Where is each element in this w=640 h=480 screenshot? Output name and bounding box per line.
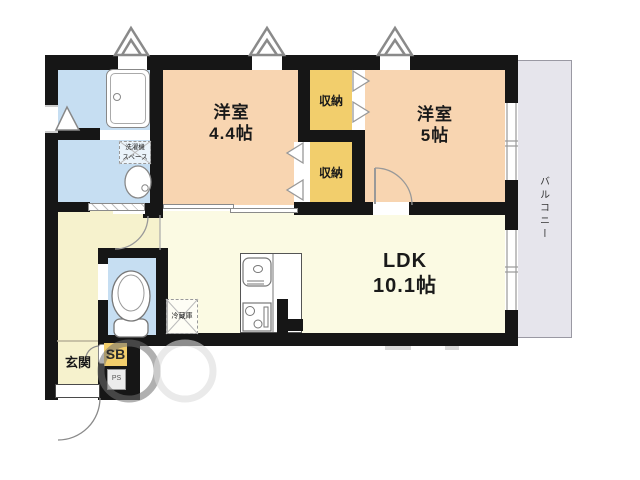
kitchen-partition-wall [277, 299, 288, 333]
sb-label: SB [104, 346, 127, 364]
room1-name: 洋室 [163, 102, 300, 123]
balcony-label: バルコニー [536, 158, 549, 258]
wall-closet-mid [298, 130, 365, 142]
toilet-door-gap [98, 264, 108, 300]
entrance-door-arc [58, 398, 100, 440]
refrigerator-label: 冷蔵庫 [166, 313, 198, 322]
vent-gap-3 [380, 55, 410, 70]
ldk-size: 10.1帖 [305, 274, 505, 299]
wall-bath-room1 [150, 55, 163, 213]
room1-sliding-door-panel-b [230, 208, 298, 213]
bath-window [45, 105, 58, 133]
washroom-sliding-door [88, 203, 145, 211]
floorplan: 洋室 4.4帖 洋室 5帖 LDK 10.1帖 収納 収納 バルコニー 玄関 S… [0, 0, 640, 480]
vent-chevron-1-inner [122, 40, 141, 55]
room2-label: 洋室 5帖 [365, 104, 505, 147]
room1-size: 4.4帖 [163, 123, 300, 144]
washer-space-label: 洗濯機 スペース [118, 143, 152, 163]
ps-label: PS [107, 375, 126, 384]
bathtub-inner [110, 73, 146, 124]
room2-balcony-window [505, 103, 518, 180]
vent-gap-2 [252, 55, 282, 70]
wall-bath-washroom [58, 128, 100, 140]
ldk-balcony-window [505, 230, 518, 310]
room1-label: 洋室 4.4帖 [163, 102, 300, 145]
watermark-smudge-2 [445, 346, 459, 350]
wall-room2-bottom-b [409, 202, 505, 215]
vent-chevron-2-inner [257, 40, 277, 55]
closet-bottom-label: 収納 [306, 166, 356, 181]
room2-name: 洋室 [365, 104, 505, 125]
toilet-floor [108, 258, 156, 335]
wall-vestibule-block [143, 203, 163, 218]
room1-sliding-door-panel-a [163, 204, 234, 209]
kitchen-partition-foot [288, 319, 303, 331]
entrance-label: 玄関 [60, 355, 96, 371]
watermark-smudge-1 [385, 346, 411, 350]
wall-room2-bottom-a [365, 202, 373, 215]
vent-chevron-2-outer [250, 28, 284, 55]
entrance-door-leaf [55, 384, 100, 398]
vent-chevron-3-inner [385, 40, 405, 55]
ldk-label: LDK 10.1帖 [305, 249, 505, 299]
room2-size: 5帖 [365, 125, 505, 146]
wall-washroom-bottom [58, 202, 90, 212]
washer-line1: 洗濯機 [118, 143, 152, 153]
wall-bottom-main [133, 333, 518, 346]
vent-chevron-3-outer [378, 28, 412, 55]
ldk-name: LDK [305, 249, 505, 274]
wall-closet-bottom [294, 202, 365, 215]
closet-top-label: 収納 [306, 94, 356, 109]
vent-chevron-1-outer [115, 28, 148, 55]
vent-gap-1 [118, 55, 147, 70]
washer-line2: スペース [118, 153, 152, 163]
watermark-ring-2 [157, 343, 213, 399]
room2-door-gap [373, 202, 409, 215]
